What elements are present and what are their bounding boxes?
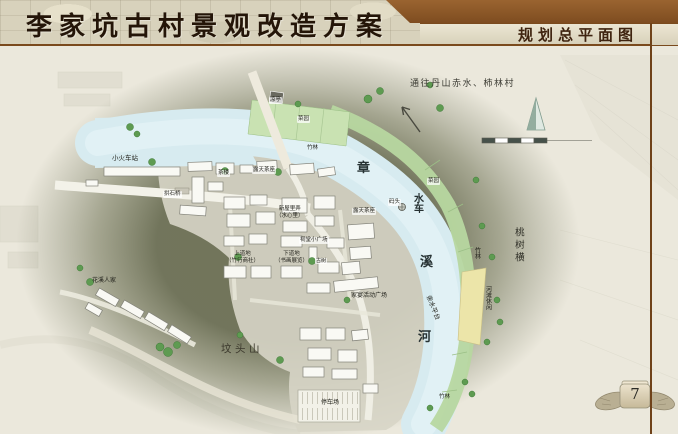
map-label-waterwheel: 水车 — [410, 193, 423, 213]
map-label-xinwu-lane: 新屋里弄 （水心里） — [276, 206, 304, 220]
map-label-road-note: 通往丹山赤水、柿林村 — [410, 79, 515, 90]
header-brown-bar — [386, 0, 678, 23]
map-label-huaxi-homes: 花溪人家 — [92, 277, 116, 285]
river-name-he: 河 — [418, 330, 431, 346]
right-vertical-rule — [650, 23, 652, 434]
river-name-zhang: 章 — [357, 161, 370, 177]
map-label-dock: 码头 — [388, 199, 401, 206]
map-label-bamboo-right: 竹林 — [473, 247, 481, 259]
page-title: 李家坑古村景观改造方案 — [26, 6, 389, 43]
map-label-pavilion: 凉亭 — [269, 97, 282, 104]
map-label-old-tree: 古树 — [315, 258, 327, 264]
map-label-activity-plaza: 家宴活动广场 — [351, 292, 387, 300]
river-name-xi: 溪 — [420, 255, 433, 271]
map-label-bamboo-top: 竹林 — [307, 145, 318, 152]
map-label-open-tea-1: 露天茶座 — [252, 167, 276, 174]
map-label-train-station: 小火车站 — [112, 154, 138, 162]
map-label-beach-leisure: 河滩休闲 — [484, 286, 492, 310]
section-title: 规划总平面图 — [518, 24, 638, 45]
map-label-garden-top: 菜园 — [297, 116, 310, 123]
page-number: 7 — [627, 385, 643, 403]
section-band-right — [652, 23, 678, 45]
map-label-lower-court: 下道地 （书画展览） — [275, 251, 308, 265]
map-label-open-tea-2: 露天茶座 — [352, 208, 376, 215]
site-plan-map — [0, 0, 678, 434]
map-label-parking: 停车场 — [321, 399, 339, 407]
map-label-hall-plaza: 祠堂小广场 — [299, 237, 329, 244]
map-label-bamboo-bottom: 竹林 — [439, 394, 450, 401]
map-label-upper-court: 上道地 （竹行商社） — [226, 251, 259, 265]
section-title-band: 规划总平面图 — [420, 23, 650, 44]
map-label-garden-right: 菜园 — [427, 178, 440, 185]
map-label-stone-bridge: 拱石桥 — [163, 191, 182, 198]
map-label-peach-ridge: 桃树横 — [512, 227, 524, 265]
map-label-fentou-hill: 坟头山 — [221, 343, 263, 356]
map-label-teahouse: 茶楼 — [217, 170, 230, 177]
